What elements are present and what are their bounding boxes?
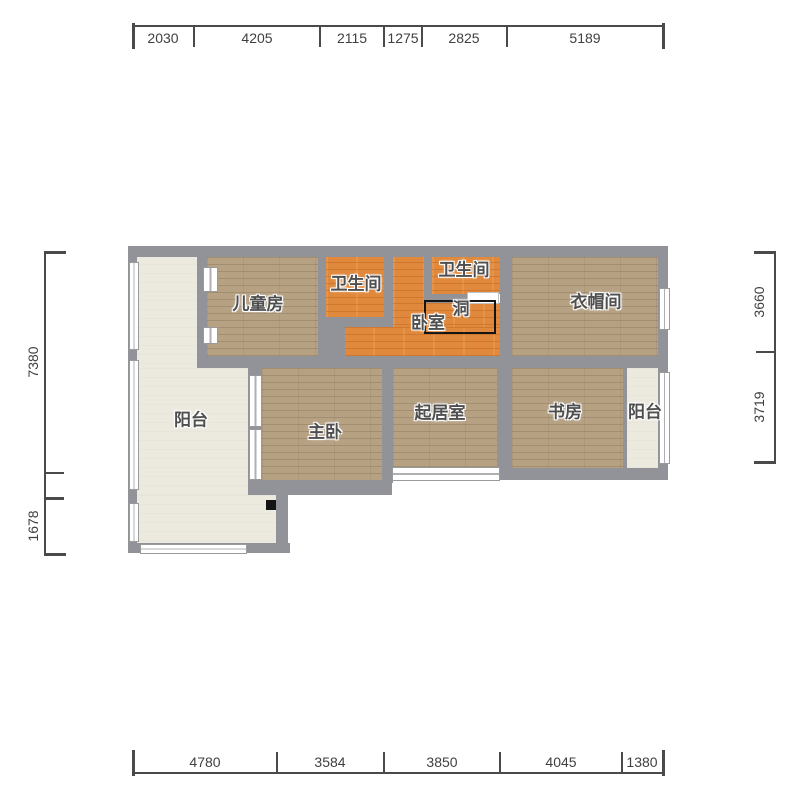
dim-bottom-0: 4780: [189, 754, 220, 770]
wall-children-left: [197, 246, 207, 368]
room-label-master: 主卧: [308, 418, 342, 443]
room-label-balcony-left: 阳台: [174, 406, 208, 431]
dim-tick: [754, 461, 776, 464]
dim-top-0: 2030: [147, 30, 178, 46]
dim-tick: [383, 752, 385, 774]
window: [129, 262, 139, 350]
wall-cloakroom-west: [500, 246, 512, 368]
window: [392, 467, 500, 481]
wall-balcony-lower-east: [276, 495, 288, 553]
floor-plan-canvas: 2030 4205 2115 1275 2825 5189 4780 3584 …: [0, 0, 800, 800]
dim-tick: [621, 752, 623, 774]
dim-bottom-1: 3584: [314, 754, 345, 770]
window: [203, 327, 218, 344]
window: [249, 375, 262, 427]
dim-tick: [44, 553, 66, 556]
dim-tick: [44, 472, 64, 474]
wall-corner-block: [318, 317, 345, 358]
window: [140, 544, 247, 554]
dim-tick: [193, 25, 195, 47]
room-label-children: 儿童房: [233, 290, 284, 315]
dim-bottom-4: 1380: [626, 754, 657, 770]
wall-study-west: [497, 362, 512, 472]
wall-bath-left-east: [384, 246, 393, 327]
room-label-balcony-right: 阳台: [628, 398, 662, 423]
dim-line-top: [133, 25, 664, 27]
dim-tick: [132, 23, 135, 49]
dim-line-bottom: [133, 772, 664, 774]
wall-master-east: [382, 362, 393, 483]
room-label-bath-right: 卫生间: [439, 256, 490, 281]
dim-tick: [754, 251, 776, 254]
dim-top-3: 1275: [387, 30, 418, 46]
dim-tick: [756, 351, 776, 353]
dim-tick: [662, 750, 665, 776]
dim-tick: [132, 750, 135, 776]
window: [129, 503, 139, 542]
room-label-study: 书房: [548, 398, 582, 423]
dim-right-1: 3719: [751, 391, 767, 422]
room-label-cloakroom: 衣帽间: [571, 288, 622, 313]
dim-bottom-2: 3850: [426, 754, 457, 770]
dim-top-5: 5189: [569, 30, 600, 46]
window: [249, 429, 262, 480]
wall-balcony-right-divider: [623, 368, 627, 468]
dim-tick: [276, 752, 278, 774]
dim-top-4: 2825: [448, 30, 479, 46]
window: [129, 360, 139, 490]
room-label-living: 起居室: [415, 399, 466, 424]
wall-top: [128, 246, 668, 257]
dim-tick: [662, 23, 665, 49]
room-label-hole: 洞: [453, 295, 470, 320]
dim-tick: [44, 251, 66, 254]
window: [659, 288, 670, 330]
dim-top-2: 2115: [337, 30, 367, 46]
column-marker: [266, 500, 276, 510]
dim-line-right: [774, 252, 776, 463]
room-label-bath-left: 卫生间: [331, 270, 382, 295]
dim-tick: [383, 25, 385, 47]
dim-tick: [499, 752, 501, 774]
wall-mid-horizontal: [197, 356, 668, 368]
window: [203, 267, 218, 292]
dim-top-1: 4205: [241, 30, 272, 46]
room-label-bedroom: 卧室: [411, 309, 445, 334]
dim-line-left: [44, 252, 46, 555]
wall-master-south: [248, 480, 392, 495]
dim-left-0: 7380: [25, 346, 41, 377]
floor-balcony-left: [137, 495, 276, 543]
dim-tick: [44, 497, 64, 500]
dim-left-1: 1678: [25, 510, 41, 541]
dim-bottom-3: 4045: [545, 754, 576, 770]
dim-tick: [506, 25, 508, 47]
dim-right-0: 3660: [751, 286, 767, 317]
dim-tick: [319, 25, 321, 47]
dim-tick: [421, 25, 423, 47]
